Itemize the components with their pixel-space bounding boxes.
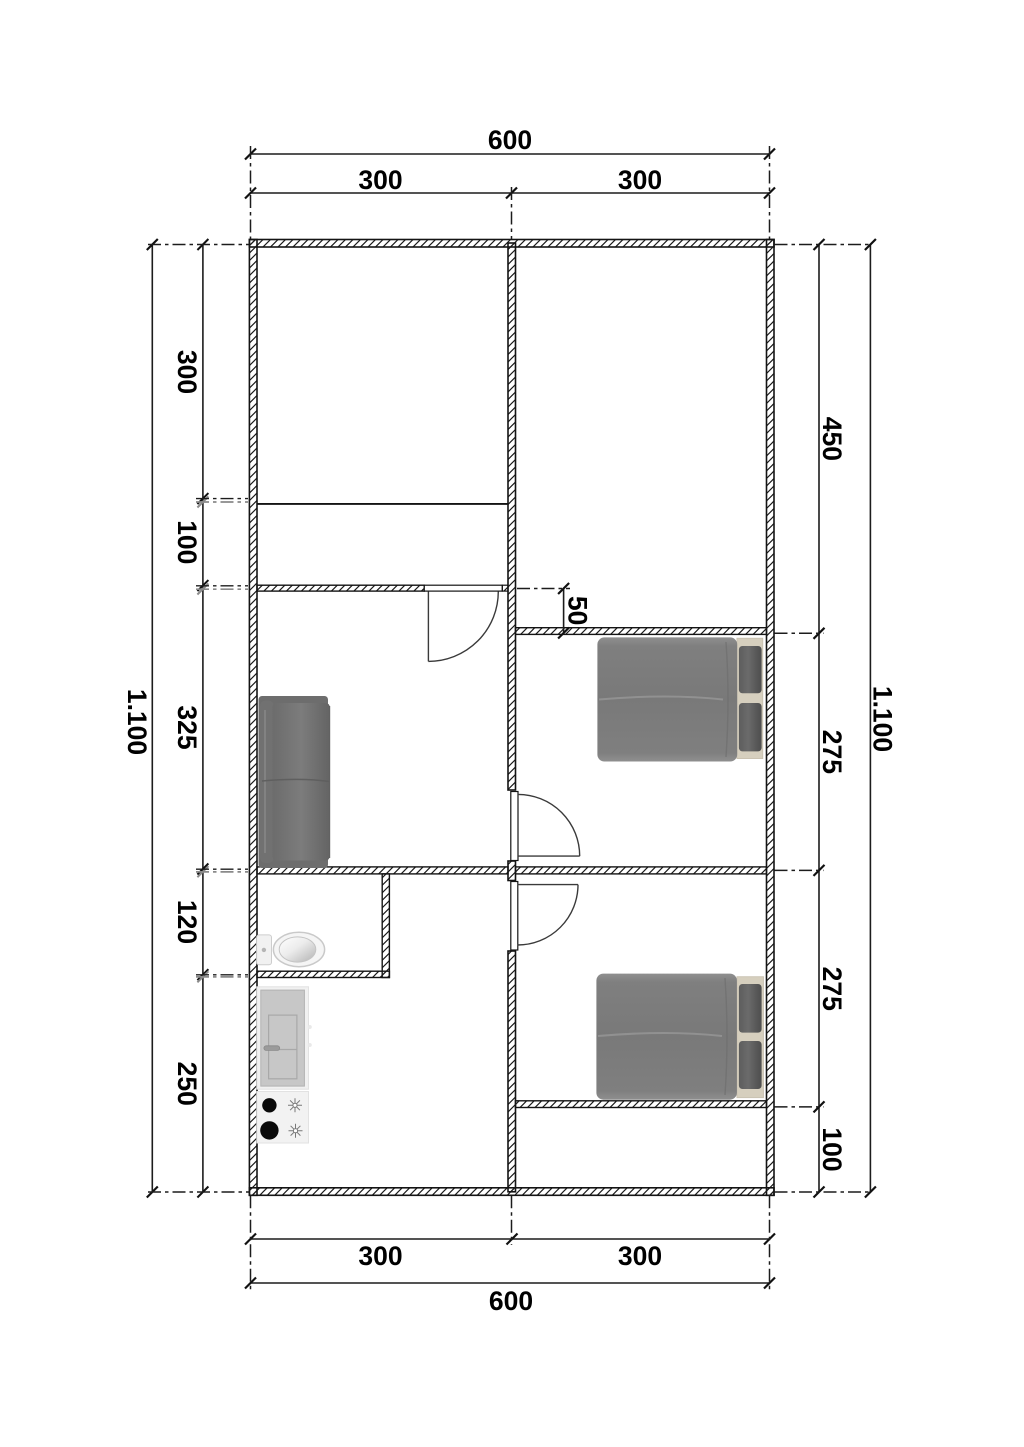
svg-text:300: 300 [358,165,402,195]
svg-text:300: 300 [618,1241,662,1271]
svg-text:325: 325 [172,705,202,749]
svg-text:120: 120 [172,900,202,944]
svg-text:300: 300 [358,1241,402,1271]
svg-text:275: 275 [817,730,847,774]
svg-text:1.100: 1.100 [122,689,152,755]
svg-text:600: 600 [489,1286,533,1316]
svg-text:450: 450 [817,417,847,461]
svg-text:600: 600 [488,125,532,155]
svg-text:250: 250 [172,1062,202,1106]
svg-text:50: 50 [563,596,593,625]
svg-text:300: 300 [618,165,662,195]
svg-text:1.100: 1.100 [868,686,898,752]
svg-text:100: 100 [172,520,202,564]
svg-text:300: 300 [172,350,202,394]
svg-text:275: 275 [817,967,847,1011]
svg-text:100: 100 [817,1127,847,1171]
